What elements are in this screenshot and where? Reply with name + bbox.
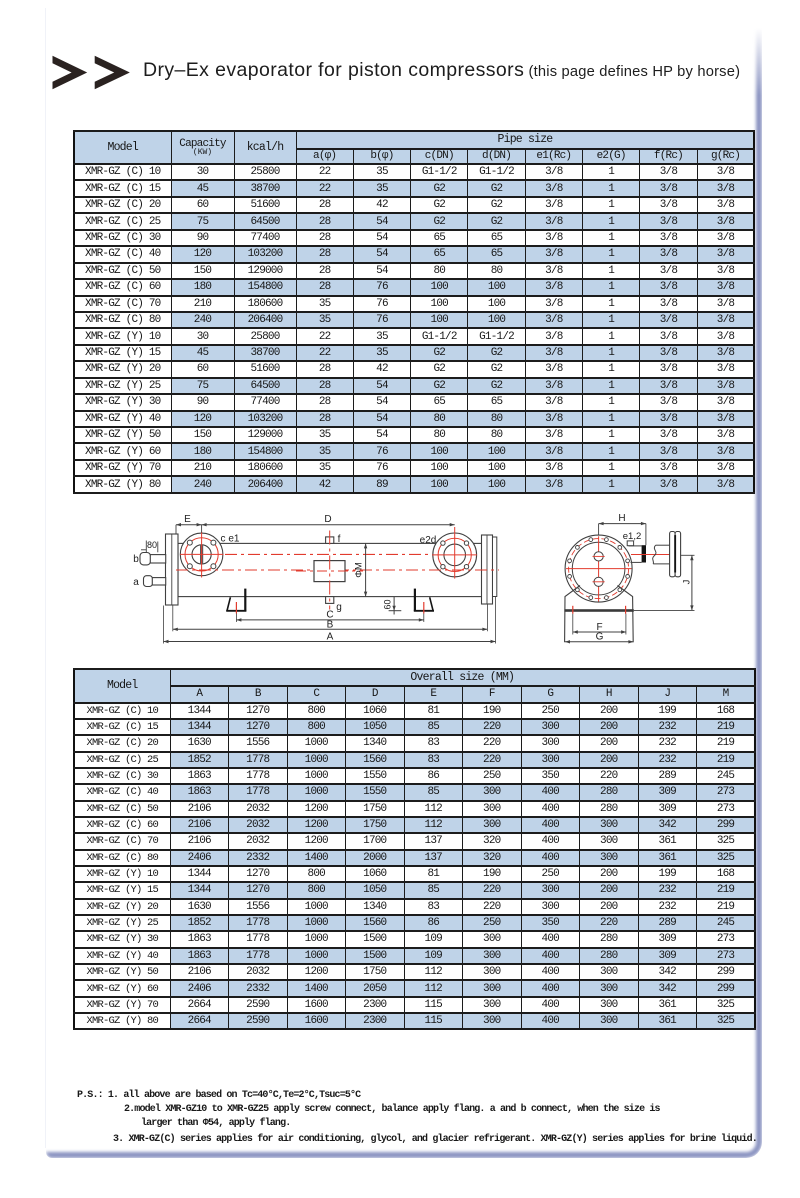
svg-text:D: D xyxy=(324,514,331,525)
svg-text:80: 80 xyxy=(147,540,157,550)
svg-text:f: f xyxy=(338,534,341,545)
svg-text:e2d: e2d xyxy=(420,535,437,546)
svg-text:ΦM: ΦM xyxy=(354,562,365,578)
svg-text:A: A xyxy=(327,631,334,642)
svg-text:J: J xyxy=(682,579,693,584)
svg-text:H: H xyxy=(618,513,625,524)
svg-text:a: a xyxy=(133,577,139,588)
svg-text:E: E xyxy=(184,514,191,525)
svg-text:60: 60 xyxy=(383,599,393,609)
svg-text:B: B xyxy=(327,619,334,630)
svg-text:e1,2: e1,2 xyxy=(623,531,642,542)
svg-text:G: G xyxy=(596,632,604,643)
svg-text:b: b xyxy=(133,554,139,565)
svg-text:g: g xyxy=(336,602,342,613)
svg-text:c e1: c e1 xyxy=(221,534,240,545)
